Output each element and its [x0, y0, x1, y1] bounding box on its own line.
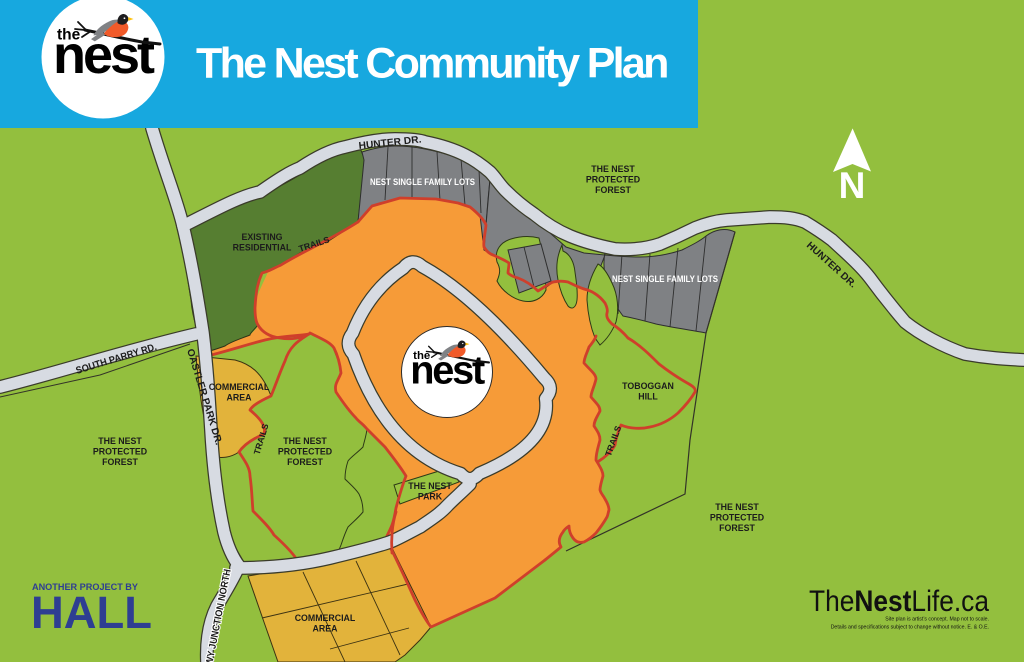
svg-text:PROTECTED: PROTECTED: [278, 447, 332, 457]
svg-text:FOREST: FOREST: [719, 523, 755, 533]
svg-text:N: N: [839, 165, 866, 206]
svg-text:HILL: HILL: [638, 392, 658, 402]
svg-text:The Nest Community Plan: The Nest Community Plan: [196, 40, 667, 88]
svg-text:AREA: AREA: [313, 624, 339, 634]
svg-text:NEST SINGLE FAMILY LOTS: NEST SINGLE FAMILY LOTS: [370, 177, 475, 188]
svg-text:Site plan is artist’s concept.: Site plan is artist’s concept. Map not t…: [885, 617, 989, 623]
svg-text:FOREST: FOREST: [102, 457, 138, 467]
svg-text:Details and specifications sub: Details and specifications subject to ch…: [831, 625, 989, 631]
svg-text:THE NEST: THE NEST: [715, 502, 759, 512]
svg-text:PROTECTED: PROTECTED: [710, 513, 764, 523]
svg-text:TheNestLife.ca: TheNestLife.ca: [809, 585, 989, 618]
svg-text:FOREST: FOREST: [287, 457, 323, 467]
svg-text:PROTECTED: PROTECTED: [93, 447, 147, 457]
svg-text:TOBOGGAN: TOBOGGAN: [622, 381, 674, 391]
svg-text:THE NEST: THE NEST: [408, 481, 452, 491]
svg-text:NEST SINGLE FAMILY LOTS: NEST SINGLE FAMILY LOTS: [612, 274, 718, 285]
svg-text:THE NEST: THE NEST: [98, 436, 142, 446]
svg-text:RESIDENTIAL: RESIDENTIAL: [233, 243, 292, 253]
svg-text:AREA: AREA: [227, 393, 253, 403]
svg-text:HALL: HALL: [31, 587, 152, 638]
svg-text:FOREST: FOREST: [595, 185, 631, 195]
svg-text:COMMERCIAL: COMMERCIAL: [295, 613, 356, 623]
svg-text:PARK: PARK: [418, 492, 443, 502]
svg-text:EXISTING: EXISTING: [241, 232, 282, 242]
svg-text:THE NEST: THE NEST: [591, 164, 635, 174]
svg-text:COMMERCIAL: COMMERCIAL: [209, 382, 270, 392]
svg-text:PROTECTED: PROTECTED: [586, 175, 640, 185]
svg-text:THE NEST: THE NEST: [283, 436, 327, 446]
